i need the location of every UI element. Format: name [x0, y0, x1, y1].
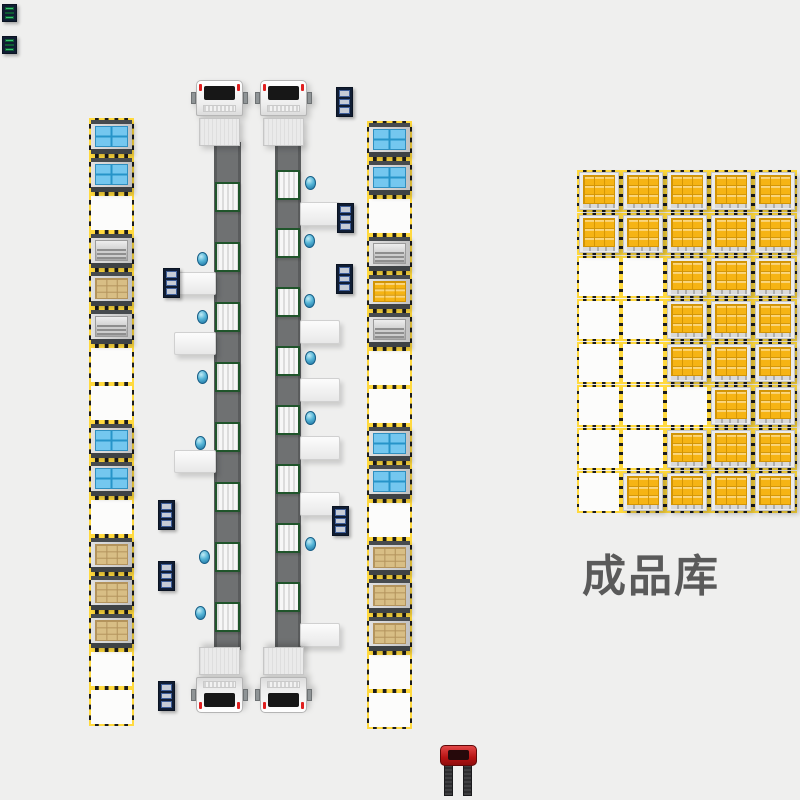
- pallet-gold-boxes: [759, 347, 791, 376]
- finished-goods-pallet-gold-boxes: [666, 257, 708, 297]
- status-chip: [2, 36, 17, 54]
- pallet: [755, 301, 795, 339]
- truck-light: [199, 702, 202, 709]
- control-panel: [163, 268, 180, 298]
- conveyor-carton: [215, 542, 240, 572]
- pallet: [91, 272, 132, 306]
- side-table: [300, 320, 340, 344]
- pallet-gold-boxes: [671, 304, 703, 333]
- rack-right-pallet-cardboard-boxes: [368, 616, 411, 652]
- conveyor-carton: [276, 464, 300, 494]
- pallet: [623, 215, 663, 253]
- finished-goods-empty-slot: [578, 386, 620, 426]
- finished-goods-empty-slot: [622, 386, 664, 426]
- pallet-gold-boxes: [715, 261, 747, 290]
- finished-goods-pallet-gold-boxes: [666, 214, 708, 254]
- pallet-cardboard-boxes: [373, 585, 406, 606]
- rack-left-pallet-cardboard-boxes: [90, 613, 133, 649]
- pallet-gold-boxes: [715, 304, 747, 333]
- conveyor-carton: [215, 602, 240, 632]
- finished-goods-pallet-gold-boxes: [666, 429, 708, 469]
- conveyor-carton: [215, 302, 240, 332]
- conveyor-belt-1: [214, 142, 241, 650]
- rack-left-empty-slot: [90, 195, 133, 231]
- finished-goods-pallet-gold-boxes: [754, 257, 796, 297]
- chip-bar: [5, 16, 14, 19]
- finished-goods-pallet-gold-boxes: [666, 300, 708, 340]
- pallet-gold-boxes: [627, 175, 659, 204]
- finished-goods-pallet-gold-boxes: [710, 257, 752, 297]
- pallet: [369, 313, 410, 347]
- pallet: [755, 344, 795, 382]
- finished-goods-pallet-gold-boxes: [754, 343, 796, 383]
- pallet-gold-boxes: [715, 390, 747, 419]
- pallet-blue-crate: [373, 471, 406, 492]
- pallet-metal-stack: [95, 240, 128, 261]
- windshield: [268, 86, 299, 100]
- pallet: [711, 387, 751, 425]
- pallet: [369, 275, 410, 309]
- rack-left-empty-slot: [90, 689, 133, 725]
- side-mirror-icon: [307, 689, 312, 701]
- rack-right-pallet-cardboard-boxes: [368, 578, 411, 614]
- pallet-metal-stack: [95, 316, 128, 337]
- rack-right-pallet-blue-crate: [368, 426, 411, 462]
- panel-bar: [161, 503, 172, 510]
- finished-goods-pallet-gold-boxes: [666, 171, 708, 211]
- agv-marker-icon: [195, 606, 206, 620]
- agv-marker-icon: [197, 252, 208, 266]
- truck-up: [192, 80, 247, 146]
- pallet: [667, 258, 707, 296]
- pallet-gold-boxes: [583, 175, 615, 204]
- status-chip: [2, 4, 17, 22]
- pallet: [755, 172, 795, 210]
- finished-goods-empty-slot: [622, 429, 664, 469]
- rack-left-pallet-cardboard-boxes: [90, 537, 133, 573]
- panel-bar: [161, 520, 172, 527]
- finished-goods-empty-slot: [578, 300, 620, 340]
- finished-goods-pallet-gold-boxes: [622, 472, 664, 512]
- truck-down: [192, 647, 247, 713]
- rack-left-pallet-blue-crate: [90, 423, 133, 459]
- pallet-cardboard-boxes: [95, 582, 128, 603]
- panel-bar: [161, 564, 172, 571]
- pallet: [711, 215, 751, 253]
- rack-left-pallet-blue-crate: [90, 157, 133, 193]
- conveyor-carton: [276, 405, 300, 435]
- pallet: [755, 473, 795, 511]
- rack-left-pallet-metal-stack: [90, 309, 133, 345]
- pallet-gold-boxes: [671, 175, 703, 204]
- pallet: [369, 579, 410, 613]
- rack-left-pallet-metal-stack: [90, 233, 133, 269]
- pallet-gold-boxes: [583, 218, 615, 247]
- fork: [463, 764, 472, 796]
- rack-right-empty-slot: [368, 692, 411, 728]
- chip-bar: [5, 39, 14, 42]
- pallet: [711, 430, 751, 468]
- rack-left-pallet-cardboard-boxes: [90, 575, 133, 611]
- rack-left-empty-slot: [90, 499, 133, 535]
- conveyor-carton: [276, 346, 300, 376]
- side-table: [300, 623, 340, 647]
- pallet-gold-boxes: [715, 476, 747, 505]
- truck-light: [237, 84, 240, 91]
- finished-goods-pallet-gold-boxes: [578, 214, 620, 254]
- fork: [444, 764, 453, 796]
- side-mirror-icon: [243, 689, 248, 701]
- truck-grill: [267, 681, 300, 688]
- control-panel: [336, 264, 353, 294]
- finished-goods-pallet-gold-boxes: [578, 171, 620, 211]
- panel-bar: [335, 518, 346, 525]
- pallet: [91, 234, 132, 268]
- agv-marker-icon: [197, 310, 208, 324]
- pallet: [623, 473, 663, 511]
- rack-right-empty-slot: [368, 198, 411, 234]
- pallet: [711, 344, 751, 382]
- rack-right-pallet-blue-crate: [368, 122, 411, 158]
- pallet-cardboard-boxes: [373, 623, 406, 644]
- finished-goods-pallet-gold-boxes: [666, 343, 708, 383]
- pallet: [667, 344, 707, 382]
- rack-left-empty-slot: [90, 385, 133, 421]
- agv-marker-icon: [199, 550, 210, 564]
- pallet-gold-boxes: [715, 433, 747, 462]
- pallet: [755, 258, 795, 296]
- side-mirror-icon: [307, 92, 312, 104]
- finished-goods-pallet-gold-boxes: [666, 472, 708, 512]
- panel-bar: [339, 284, 350, 291]
- finished-goods-pallet-gold-boxes: [754, 429, 796, 469]
- pallet-jack-forklift: [440, 745, 477, 797]
- pallet: [755, 430, 795, 468]
- panel-bar: [161, 684, 172, 691]
- panel-bar: [166, 271, 177, 278]
- pallet-gold-boxes: [715, 218, 747, 247]
- rack-right-pallet-metal-stack: [368, 312, 411, 348]
- finished-goods-pallet-gold-boxes: [622, 171, 664, 211]
- pallet-gold-boxes: [759, 433, 791, 462]
- finished-goods-empty-slot: [622, 257, 664, 297]
- windshield: [204, 86, 235, 100]
- pallet: [91, 310, 132, 344]
- conveyor-carton: [276, 582, 300, 612]
- pallet-gold-boxes: [671, 476, 703, 505]
- panel-bar: [335, 526, 346, 533]
- windshield: [204, 693, 235, 707]
- finished-goods-pallet-gold-boxes: [710, 429, 752, 469]
- pallet: [91, 462, 132, 496]
- finished-goods-pallet-gold-boxes: [710, 171, 752, 211]
- truck-light: [263, 702, 266, 709]
- rack-right-pallet-blue-crate: [368, 160, 411, 196]
- finished-goods-pallet-gold-boxes: [754, 300, 796, 340]
- truck-trailer: [199, 647, 240, 675]
- rack-right-pallet-metal-stack: [368, 236, 411, 272]
- pallet-gold-boxes: [671, 261, 703, 290]
- agv-marker-icon: [304, 294, 315, 308]
- pallet-blue-crate: [373, 167, 406, 188]
- agv-marker-icon: [195, 436, 206, 450]
- pallet-gold-boxes: [627, 218, 659, 247]
- pallet-gold-boxes: [759, 218, 791, 247]
- pallet: [369, 427, 410, 461]
- pallet: [369, 541, 410, 575]
- pallet-gold-boxes: [759, 304, 791, 333]
- pallet-cardboard-boxes: [373, 547, 406, 568]
- pallet-gold-boxes: [759, 476, 791, 505]
- truck-light: [237, 702, 240, 709]
- pallet: [91, 538, 132, 572]
- truck-up: [256, 80, 311, 146]
- panel-bar: [339, 267, 350, 274]
- pallet: [623, 172, 663, 210]
- pallet-blue-crate: [95, 468, 128, 489]
- rack-right-empty-slot: [368, 350, 411, 386]
- conveyor-carton: [215, 362, 240, 392]
- pallet-gold-boxes: [627, 476, 659, 505]
- pallet-metal-stack: [373, 243, 406, 264]
- panel-bar: [339, 107, 350, 114]
- control-panel: [332, 506, 349, 536]
- panel-bar: [340, 215, 351, 222]
- pallet: [667, 172, 707, 210]
- pallet-gold-boxes: [715, 175, 747, 204]
- pallet: [755, 215, 795, 253]
- truck-trailer: [199, 118, 240, 146]
- truck-light: [199, 84, 202, 91]
- rack-left-pallet-blue-crate: [90, 119, 133, 155]
- pallet: [91, 614, 132, 648]
- control-panel: [336, 87, 353, 117]
- finished-goods-pallet-gold-boxes: [754, 472, 796, 512]
- rack-left-pallet-blue-crate: [90, 461, 133, 497]
- pallet-cardboard-boxes: [95, 620, 128, 641]
- pallet: [667, 473, 707, 511]
- pallet: [667, 215, 707, 253]
- pallet: [91, 158, 132, 192]
- truck-down: [256, 647, 311, 713]
- rack-left-pallet-cardboard-boxes: [90, 271, 133, 307]
- agv-marker-icon: [305, 351, 316, 365]
- agv-marker-icon: [305, 537, 316, 551]
- pallet-blue-crate: [373, 433, 406, 454]
- pallet: [91, 576, 132, 610]
- side-table: [174, 450, 216, 473]
- side-table: [300, 202, 340, 226]
- panel-bar: [339, 276, 350, 283]
- pallet: [369, 237, 410, 271]
- conveyor-carton: [215, 482, 240, 512]
- rack-right-pallet-gold-boxes: [368, 274, 411, 310]
- rack-right-empty-slot: [368, 388, 411, 424]
- conveyor-carton: [215, 242, 240, 272]
- rack-left-empty-slot: [90, 347, 133, 383]
- pallet-gold-boxes: [671, 218, 703, 247]
- finished-goods-pallet-gold-boxes: [622, 214, 664, 254]
- pallet-gold-boxes: [373, 281, 406, 302]
- pallet-cardboard-boxes: [95, 544, 128, 565]
- pallet: [579, 215, 619, 253]
- windshield: [268, 693, 299, 707]
- side-table: [300, 436, 340, 460]
- finished-goods-pallet-gold-boxes: [754, 171, 796, 211]
- rack-right-empty-slot: [368, 502, 411, 538]
- finished-goods-empty-slot: [622, 343, 664, 383]
- pallet-gold-boxes: [759, 390, 791, 419]
- truck-light: [301, 702, 304, 709]
- pallet-blue-crate: [95, 430, 128, 451]
- control-panel: [337, 203, 354, 233]
- panel-bar: [161, 573, 172, 580]
- panel-bar: [339, 99, 350, 106]
- pallet: [711, 301, 751, 339]
- truck-light: [301, 84, 304, 91]
- agv-marker-icon: [304, 234, 315, 248]
- pallet: [91, 424, 132, 458]
- pallet: [711, 258, 751, 296]
- pallet-blue-crate: [95, 164, 128, 185]
- conveyor-carton: [215, 182, 240, 212]
- chip-bar: [5, 12, 14, 15]
- pallet-gold-boxes: [715, 347, 747, 376]
- pallet: [369, 123, 410, 157]
- conveyor-belt-2: [275, 142, 301, 650]
- finished-goods-empty-slot: [578, 257, 620, 297]
- warehouse-simulation-scene: 成品库: [0, 0, 800, 800]
- conveyor-carton: [276, 523, 300, 553]
- finished-goods-empty-slot: [622, 300, 664, 340]
- control-panel: [158, 561, 175, 591]
- panel-bar: [340, 223, 351, 230]
- finished-goods-empty-slot: [666, 386, 708, 426]
- panel-bar: [166, 280, 177, 287]
- truck-cab: [196, 677, 243, 713]
- panel-bar: [161, 701, 172, 708]
- truck-cab: [260, 80, 307, 116]
- panel-bar: [161, 693, 172, 700]
- panel-bar: [339, 90, 350, 97]
- pallet: [667, 430, 707, 468]
- chip-bar: [5, 44, 14, 47]
- panel-bar: [161, 581, 172, 588]
- pallet: [711, 172, 751, 210]
- pallet: [369, 465, 410, 499]
- panel-bar: [166, 288, 177, 295]
- panel-bar: [340, 206, 351, 213]
- pallet-gold-boxes: [759, 175, 791, 204]
- finished-goods-pallet-gold-boxes: [710, 343, 752, 383]
- side-mirror-icon: [243, 92, 248, 104]
- conveyor-carton: [276, 287, 300, 317]
- finished-goods-empty-slot: [578, 429, 620, 469]
- panel-bar: [161, 512, 172, 519]
- pallet-cardboard-boxes: [95, 278, 128, 299]
- finished-goods-pallet-gold-boxes: [754, 214, 796, 254]
- pallet-gold-boxes: [671, 347, 703, 376]
- truck-trailer: [263, 118, 304, 146]
- finished-goods-pallet-gold-boxes: [710, 300, 752, 340]
- truck-trailer: [263, 647, 304, 675]
- finished-goods-pallet-gold-boxes: [710, 472, 752, 512]
- panel-bar: [335, 509, 346, 516]
- finished-goods-empty-slot: [578, 343, 620, 383]
- truck-grill: [267, 105, 300, 112]
- pallet: [711, 473, 751, 511]
- pallet: [579, 172, 619, 210]
- side-table: [174, 272, 216, 295]
- truck-grill: [203, 105, 236, 112]
- chip-bar: [5, 48, 14, 51]
- chip-bar: [5, 7, 14, 10]
- rack-right-empty-slot: [368, 654, 411, 690]
- pallet-gold-boxes: [671, 433, 703, 462]
- forklift-body: [440, 745, 477, 766]
- truck-cab: [196, 80, 243, 116]
- truck-cab: [260, 677, 307, 713]
- side-table: [174, 332, 216, 355]
- finished-goods-pallet-gold-boxes: [710, 214, 752, 254]
- agv-marker-icon: [197, 370, 208, 384]
- conveyor-carton: [276, 170, 300, 200]
- control-panel: [158, 500, 175, 530]
- pallet-metal-stack: [373, 319, 406, 340]
- agv-marker-icon: [305, 411, 316, 425]
- side-table: [300, 378, 340, 402]
- agv-marker-icon: [305, 176, 316, 190]
- finished-goods-pallet-gold-boxes: [710, 386, 752, 426]
- rack-left-empty-slot: [90, 651, 133, 687]
- rack-right-pallet-blue-crate: [368, 464, 411, 500]
- pallet: [667, 301, 707, 339]
- pallet-gold-boxes: [759, 261, 791, 290]
- pallet: [369, 617, 410, 651]
- pallet: [369, 161, 410, 195]
- pallet: [755, 387, 795, 425]
- finished-goods-pallet-gold-boxes: [754, 386, 796, 426]
- truck-grill: [203, 681, 236, 688]
- conveyor-carton: [215, 422, 240, 452]
- truck-light: [263, 84, 266, 91]
- pallet-blue-crate: [95, 126, 128, 147]
- rack-right-pallet-cardboard-boxes: [368, 540, 411, 576]
- control-panel: [158, 681, 175, 711]
- finished-goods-label: 成品库: [582, 540, 720, 604]
- finished-goods-empty-slot: [578, 472, 620, 512]
- pallet-blue-crate: [373, 129, 406, 150]
- conveyor-carton: [276, 228, 300, 258]
- pallet: [91, 120, 132, 154]
